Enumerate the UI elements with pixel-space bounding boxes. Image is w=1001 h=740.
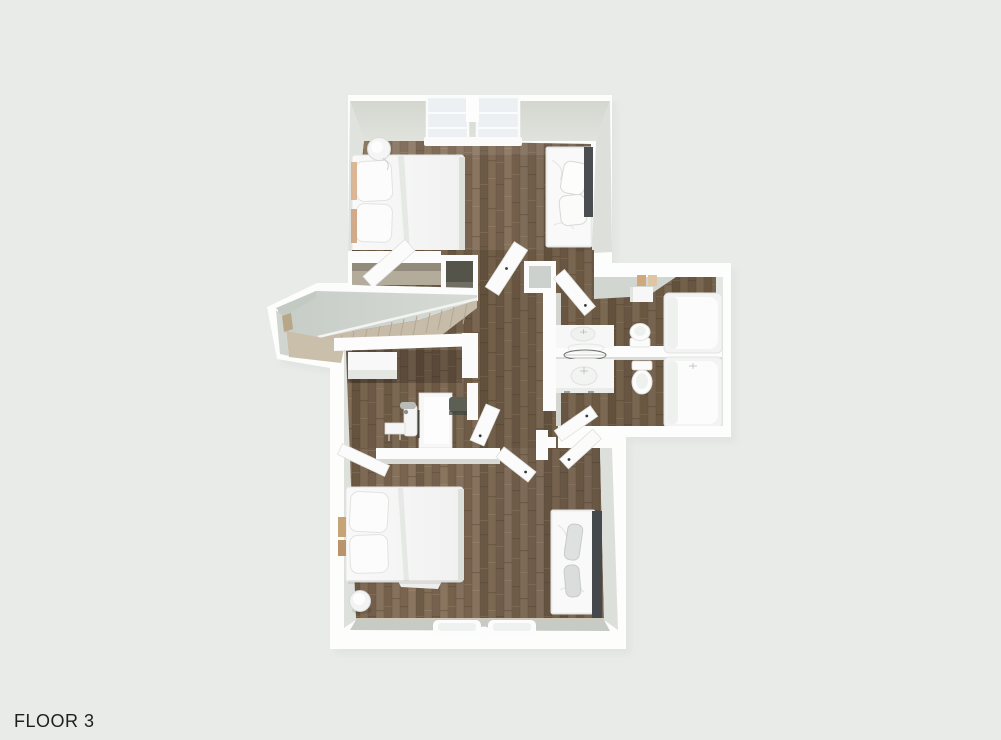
svg-text:FLOOR 3: FLOOR 3 <box>14 711 95 731</box>
